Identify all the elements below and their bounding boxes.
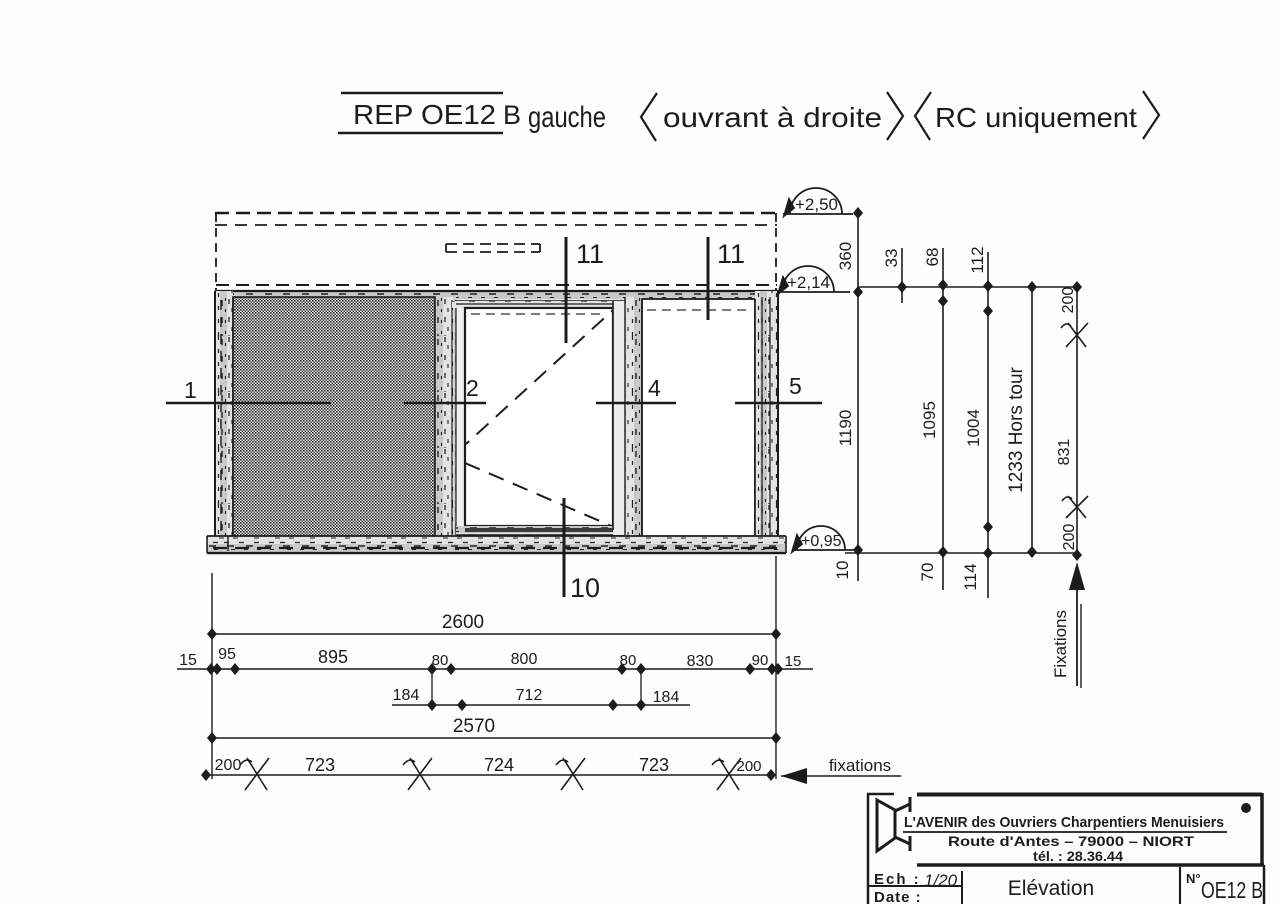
svg-text:10: 10: [833, 561, 852, 580]
svg-text:1095: 1095: [920, 401, 939, 439]
svg-text:1004: 1004: [964, 409, 983, 447]
svg-text:Fixations: Fixations: [1051, 610, 1070, 678]
svg-text:1: 1: [184, 377, 197, 403]
svg-text:80: 80: [620, 652, 637, 669]
svg-text:90: 90: [752, 652, 769, 669]
svg-text:N°: N°: [1186, 871, 1201, 886]
svg-text:+2,50: +2,50: [795, 195, 838, 214]
svg-text:724: 724: [484, 755, 514, 775]
svg-text:800: 800: [511, 651, 538, 668]
svg-text:2600: 2600: [442, 612, 484, 633]
svg-text:2570: 2570: [453, 716, 495, 737]
svg-text:831: 831: [1056, 439, 1073, 466]
svg-text:5: 5: [789, 373, 802, 399]
svg-text:+0,95: +0,95: [801, 533, 842, 550]
svg-text:895: 895: [318, 647, 348, 667]
svg-text:OE12 B: OE12 B: [1201, 877, 1263, 903]
svg-text:10: 10: [570, 573, 600, 603]
svg-text:723: 723: [305, 755, 335, 775]
svg-text:+2,14: +2,14: [787, 273, 830, 292]
svg-text:68: 68: [923, 248, 942, 267]
svg-text:Date :: Date :: [874, 889, 922, 904]
svg-text:fixations: fixations: [829, 756, 891, 775]
svg-text:L'AVENIR des Ouvriers Charpen: L'AVENIR des Ouvriers Charpentiers Menui…: [904, 814, 1224, 831]
svg-text:Route d'Antes – 79000 – NIORT: Route d'Antes – 79000 – NIORT: [948, 833, 1195, 849]
svg-text:15: 15: [785, 653, 802, 670]
svg-text:Ech :: Ech :: [874, 871, 921, 888]
svg-text:1/20: 1/20: [924, 871, 958, 890]
svg-text:ouvrant à droite: ouvrant à droite: [663, 102, 882, 133]
svg-text:1190: 1190: [836, 410, 855, 447]
svg-text:830: 830: [687, 653, 714, 670]
svg-text:2: 2: [466, 375, 479, 401]
svg-text:REP OE12: REP OE12: [353, 99, 496, 130]
svg-text:RC uniquement: RC uniquement: [935, 102, 1137, 133]
svg-text:B: B: [503, 100, 521, 130]
svg-text:114: 114: [961, 563, 980, 590]
svg-text:70: 70: [918, 563, 937, 582]
svg-text:112: 112: [968, 246, 987, 273]
svg-text:712: 712: [516, 687, 543, 704]
svg-text:360: 360: [836, 242, 855, 270]
svg-text:80: 80: [432, 652, 449, 669]
svg-text:200: 200: [215, 757, 242, 774]
svg-text:4: 4: [648, 375, 661, 401]
svg-text:723: 723: [639, 755, 669, 775]
svg-text:33: 33: [882, 249, 901, 268]
svg-text:1233 Hors tour: 1233 Hors tour: [1006, 366, 1027, 492]
svg-text:200: 200: [1061, 524, 1078, 551]
svg-text:184: 184: [393, 687, 420, 704]
svg-text:tél. : 28.36.44: tél. : 28.36.44: [1033, 848, 1123, 864]
svg-text:Elévation: Elévation: [1008, 877, 1094, 900]
svg-text:15: 15: [179, 652, 197, 669]
svg-text:184: 184: [653, 689, 680, 706]
svg-text:gauche: gauche: [528, 101, 606, 134]
svg-text:11: 11: [717, 239, 745, 269]
svg-text:95: 95: [218, 646, 236, 663]
svg-text:11: 11: [576, 239, 604, 269]
svg-text:200: 200: [736, 758, 761, 775]
svg-text:200: 200: [1060, 287, 1077, 314]
